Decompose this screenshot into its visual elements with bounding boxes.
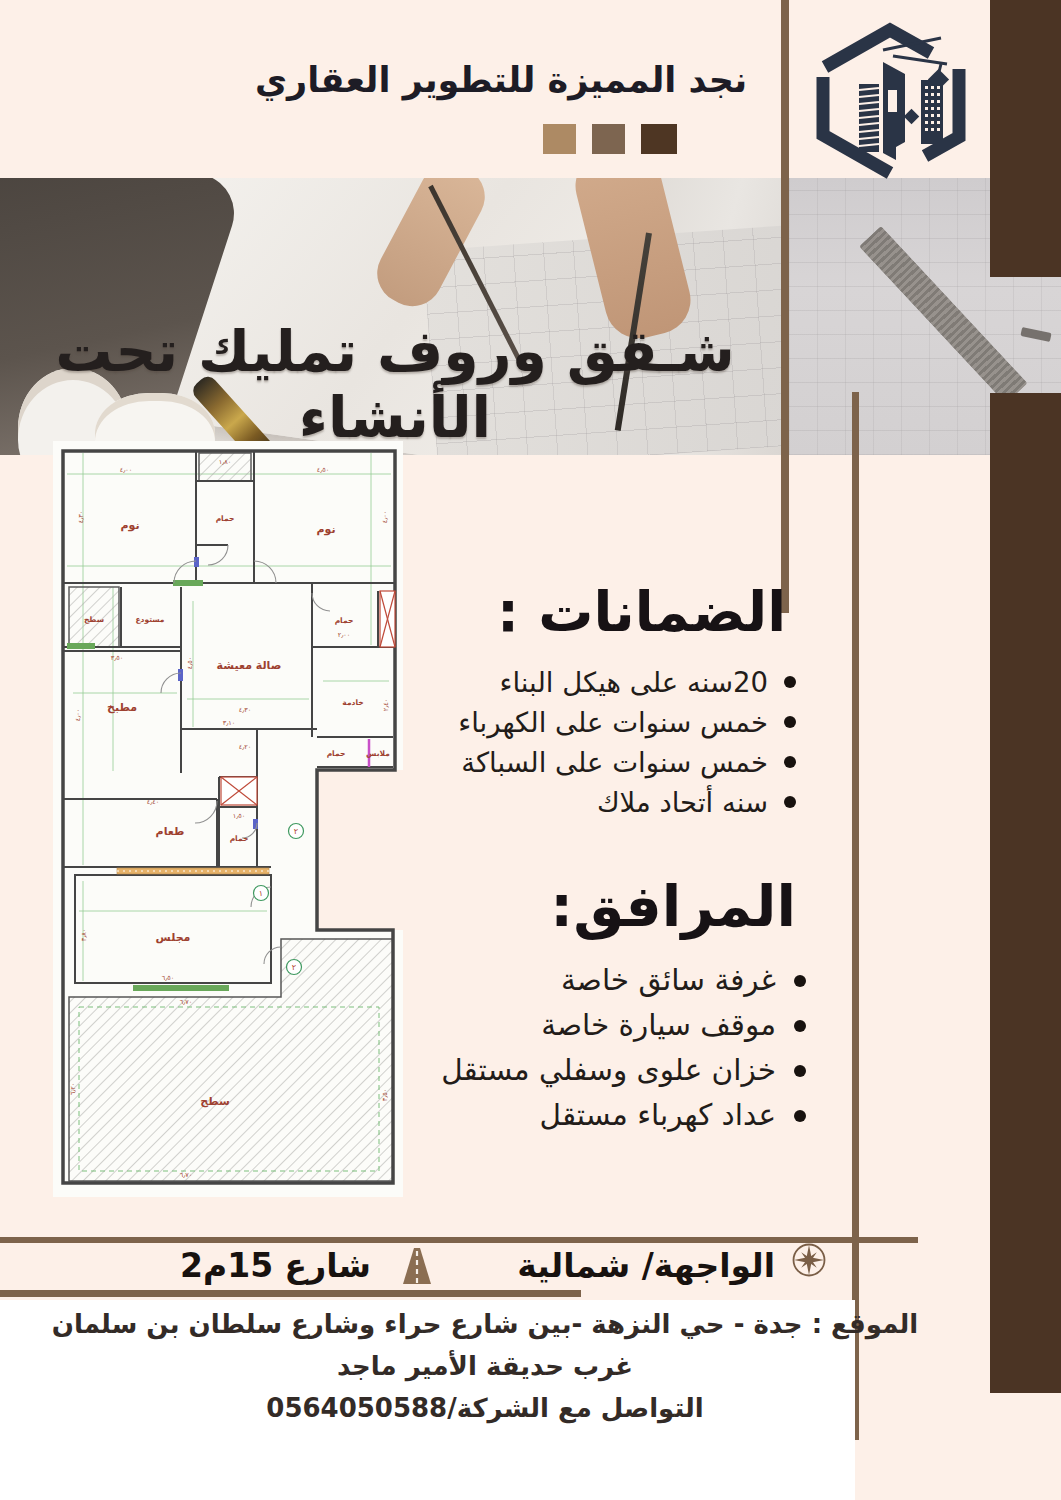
svg-text:مستودع: مستودع bbox=[135, 615, 164, 624]
facility-item: عداد كهرباء مستقل bbox=[368, 1093, 808, 1138]
svg-text:٤٫٠٠: ٤٫٠٠ bbox=[74, 709, 82, 722]
facilities-section: المرافق: غرفة سائق خاصة موقف سيارة خاصة … bbox=[368, 868, 808, 1138]
svg-text:مطبخ: مطبخ bbox=[107, 701, 137, 714]
guarantee-item: خمس سنوات على الكهرباء bbox=[368, 702, 798, 742]
facility-item: موقف سيارة خاصة bbox=[368, 1003, 808, 1048]
svg-text:٦٫٢٠: ٦٫٢٠ bbox=[69, 1083, 77, 1096]
road-icon bbox=[403, 1248, 431, 1284]
decor-square-medium bbox=[592, 124, 625, 154]
svg-text:٢: ٢ bbox=[294, 827, 298, 836]
street-label: شارع 15م2 bbox=[168, 1240, 383, 1292]
facility-item: غرفة سائق خاصة bbox=[368, 958, 808, 1003]
banner-title: شـقق وروف تمليك تحت الأنشاء bbox=[55, 318, 735, 450]
svg-text:نوم: نوم bbox=[120, 519, 139, 532]
svg-text:سطح: سطح bbox=[200, 1095, 229, 1108]
window-band bbox=[117, 868, 269, 874]
svg-text:٤٫٠٠: ٤٫٠٠ bbox=[120, 466, 133, 474]
svg-text:سطح: سطح bbox=[84, 615, 104, 624]
svg-text:٤٫٥٠: ٤٫٥٠ bbox=[317, 466, 330, 474]
svg-text:حمام: حمام bbox=[216, 514, 235, 523]
svg-text:نوم: نوم bbox=[316, 523, 335, 536]
svg-text:٣٫٥٠: ٣٫٥٠ bbox=[111, 654, 124, 662]
company-logo-icon bbox=[813, 22, 967, 180]
svg-text:٢٫٠٠: ٢٫٠٠ bbox=[338, 631, 351, 639]
decor-square-dark bbox=[641, 124, 677, 154]
svg-text:٢: ٢ bbox=[292, 963, 296, 972]
right-stripe-top bbox=[990, 0, 1061, 277]
svg-text:١٫٥٠: ١٫٥٠ bbox=[233, 812, 246, 820]
svg-text:٤٫٢٠: ٤٫٢٠ bbox=[239, 743, 252, 751]
floor-plan: ٢١٢ نومحمامنومسطحمستودعصالة معيشةحماممطب… bbox=[53, 441, 403, 1197]
guarantees-heading: الضمانات : bbox=[368, 576, 786, 648]
vertical-rule-body bbox=[852, 392, 859, 1440]
svg-text:٤٫٠٠: ٤٫٠٠ bbox=[381, 511, 389, 524]
facilities-list: غرفة سائق خاصة موقف سيارة خاصة خزان علوى… bbox=[368, 958, 808, 1138]
svg-text:مجلس: مجلس bbox=[156, 931, 191, 944]
contact-phone: التواصل مع الشركة/0564050588 bbox=[20, 1387, 950, 1429]
svg-text:٣٫١٠: ٣٫١٠ bbox=[223, 719, 236, 727]
facilities-heading: المرافق: bbox=[368, 868, 796, 944]
facade-label: الواجهة/ شمالية bbox=[540, 1240, 775, 1292]
guarantee-item: خمس سنوات على السباكة bbox=[368, 742, 798, 782]
svg-text:١٫٨٠: ١٫٨٠ bbox=[219, 458, 232, 466]
svg-text:حمام: حمام bbox=[335, 616, 354, 625]
flyer-page: نجد المميزة للتطوير العقاري bbox=[0, 0, 1061, 1500]
svg-text:٤٫٥٠: ٤٫٥٠ bbox=[186, 657, 194, 670]
svg-text:خادمة: خادمة bbox=[342, 698, 363, 707]
location-text: الموقع : جدة - حي النزهة -بين شارع حراء … bbox=[20, 1303, 950, 1387]
guarantee-item: 20سنه على هيكل البناء bbox=[368, 662, 798, 702]
svg-text:حمام: حمام bbox=[327, 749, 346, 758]
svg-text:٤٫٣٠: ٤٫٣٠ bbox=[239, 706, 252, 714]
svg-text:٣٫٨٠: ٣٫٨٠ bbox=[80, 929, 88, 942]
svg-text:طعام: طعام bbox=[156, 825, 185, 838]
right-stripe-main bbox=[990, 393, 1061, 1393]
svg-text:حمام: حمام bbox=[230, 834, 249, 843]
svg-text:١: ١ bbox=[259, 889, 263, 898]
svg-text:صالة معيشة: صالة معيشة bbox=[217, 659, 282, 672]
svg-text:٤٫٤٠: ٤٫٤٠ bbox=[147, 798, 160, 806]
footer-rule-top bbox=[0, 1237, 918, 1243]
footer-rule-bottom bbox=[0, 1290, 581, 1297]
svg-text:٦٫٧٠: ٦٫٧٠ bbox=[180, 998, 193, 1006]
facility-item: خزان علوى وسفلي مستقل bbox=[368, 1048, 808, 1093]
compass-icon bbox=[791, 1242, 827, 1278]
svg-text:٦٫٧٠: ٦٫٧٠ bbox=[180, 1171, 193, 1179]
location-block: الموقع : جدة - حي النزهة -بين شارع حراء … bbox=[20, 1303, 950, 1429]
company-name: نجد المميزة للتطوير العقاري bbox=[255, 60, 775, 100]
svg-text:٤٫٣٠: ٤٫٣٠ bbox=[77, 511, 85, 524]
decor-square-light bbox=[543, 124, 576, 154]
guarantees-list: 20سنه على هيكل البناء خمس سنوات على الكه… bbox=[368, 662, 798, 822]
pencil-mark bbox=[1020, 327, 1051, 342]
guarantees-section: الضمانات : 20سنه على هيكل البناء خمس سنو… bbox=[368, 576, 798, 822]
guarantee-item: سنه أتحاد ملاك bbox=[368, 782, 798, 822]
svg-text:٦٫٥٠: ٦٫٥٠ bbox=[162, 974, 175, 982]
vertical-rule-header bbox=[781, 0, 789, 613]
